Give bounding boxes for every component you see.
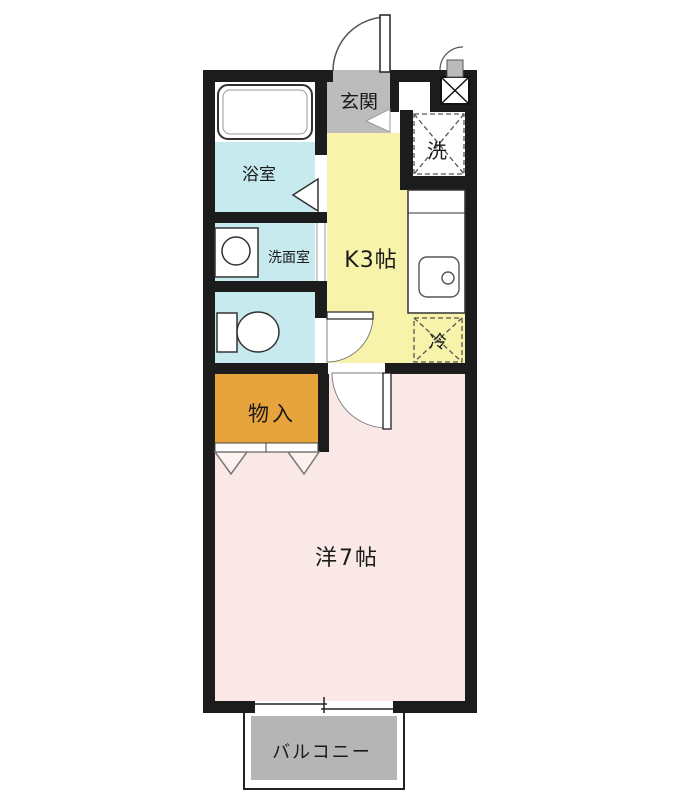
entrance-door-leaf <box>380 15 390 72</box>
room-kitchen-strip <box>400 190 408 363</box>
wall-toilet-bottom <box>203 363 328 374</box>
floorplan-canvas: 玄関 浴室 洗面室 K3帖 洗 冷 物入 洋7帖 バルコニー <box>0 0 689 800</box>
label-genkan: 玄関 <box>340 91 378 113</box>
wall-washer-bottom <box>400 176 477 190</box>
wall-genkan-right <box>390 70 399 112</box>
wall-bottom-right <box>393 701 477 713</box>
room-western-upper <box>327 374 465 701</box>
floorplan-drawing: 玄関 浴室 洗面室 K3帖 洗 冷 物入 洋7帖 バルコニー <box>0 0 689 800</box>
toilet-bowl <box>237 312 279 352</box>
label-balcony: バルコニー <box>272 742 372 763</box>
wall-bath-kitchen <box>315 70 327 155</box>
wall-bath-bottom <box>203 212 327 223</box>
wall-bottom-left <box>203 701 255 713</box>
wall-top-left <box>203 70 333 82</box>
toilet-door-leaf <box>327 312 373 319</box>
bathtub <box>218 85 312 139</box>
label-kitchen: K3帖 <box>344 248 397 273</box>
wall-kitchen-room <box>385 363 477 374</box>
label-washroom: 洗面室 <box>268 249 310 266</box>
room-western-lower <box>215 452 327 701</box>
room-door-leaf <box>383 373 391 429</box>
kitchen-faucet <box>442 272 454 284</box>
pipe-space-x-box <box>441 77 469 104</box>
entrance-door-arc <box>333 17 387 71</box>
wall-toilet-kitchen <box>315 292 327 318</box>
wall-washroom-bottom <box>203 281 327 292</box>
label-fridge: 冷 <box>429 332 447 353</box>
wall-left <box>203 70 215 713</box>
toilet-tank <box>217 313 237 352</box>
label-storage: 物入 <box>248 402 296 426</box>
washbasin-bowl <box>222 237 250 265</box>
wall-right <box>465 70 477 713</box>
meter-box-door-leaf <box>447 60 463 77</box>
label-washer: 洗 <box>427 139 447 163</box>
label-bathroom: 浴室 <box>242 165 276 185</box>
label-western-room: 洋7帖 <box>315 546 379 571</box>
washroom-sliding-door <box>317 223 325 281</box>
wall-storage-right <box>318 374 329 452</box>
